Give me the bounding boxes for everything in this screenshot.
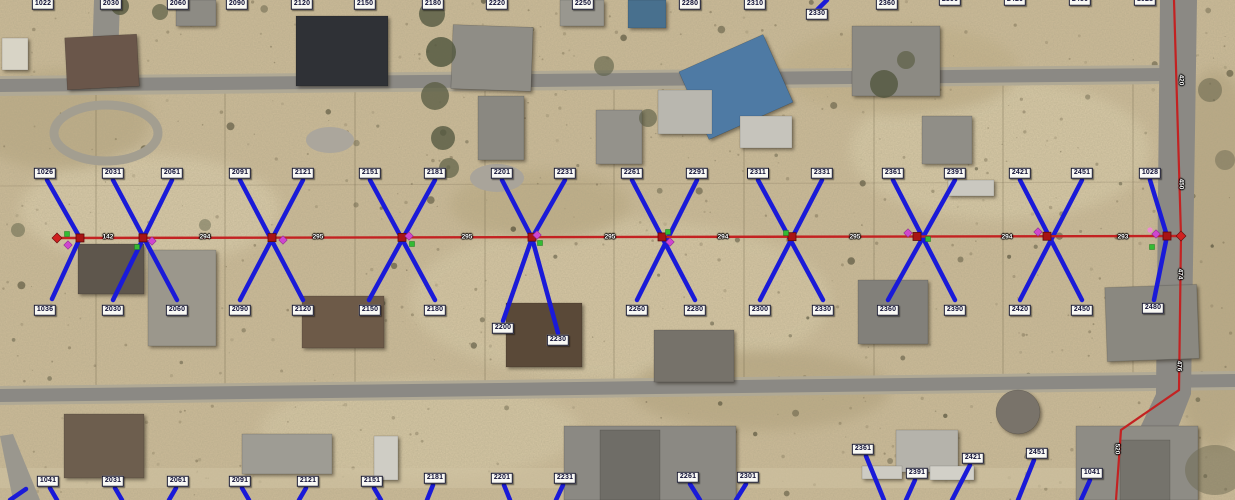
address-label[interactable]: 2061	[167, 476, 189, 487]
address-label[interactable]: 2061	[161, 168, 183, 179]
address-label[interactable]: 1026	[34, 168, 56, 179]
address-label[interactable]: 2280	[679, 0, 701, 9]
address-label[interactable]: 2031	[102, 476, 124, 487]
distance-label: 294	[718, 234, 729, 241]
address-label[interactable]: 2231	[554, 473, 576, 484]
address-label[interactable]: 2361	[852, 444, 874, 455]
address-label[interactable]: 2420	[1009, 305, 1031, 316]
address-label[interactable]: 2181	[424, 168, 446, 179]
address-label[interactable]: 2150	[354, 0, 376, 9]
address-label[interactable]: 2151	[359, 168, 381, 179]
address-label[interactable]: 2330	[806, 9, 828, 20]
address-label[interactable]: 2150	[359, 305, 381, 316]
distance-label: 293	[1118, 234, 1129, 241]
distance-label: 142	[103, 234, 114, 241]
road-distance-label: 520	[1114, 444, 1121, 455]
address-label[interactable]: 2391	[906, 468, 928, 479]
address-label[interactable]: 2181	[424, 473, 446, 484]
address-label[interactable]: 2121	[292, 168, 314, 179]
address-label[interactable]: 2330	[812, 305, 834, 316]
map-viewport: 1022203020602090212021502180222022502280…	[0, 0, 1235, 500]
address-label[interactable]: 2091	[229, 168, 251, 179]
address-label[interactable]: 2361	[882, 168, 904, 179]
address-label[interactable]: 1022	[32, 0, 54, 9]
address-label[interactable]: 2300	[749, 305, 771, 316]
address-label[interactable]: 2120	[291, 0, 313, 9]
address-label[interactable]: 2220	[486, 0, 508, 9]
distance-label: 295	[850, 234, 861, 241]
address-label[interactable]: 2121	[297, 476, 319, 487]
address-label[interactable]: 2291	[686, 168, 708, 179]
address-label[interactable]: 2450	[1071, 305, 1093, 316]
road-distance-label: 420	[1178, 75, 1185, 86]
address-label[interactable]: 2031	[102, 168, 124, 179]
distance-label: 295	[313, 234, 324, 241]
address-label[interactable]: 2060	[167, 0, 189, 9]
address-label[interactable]: 2360	[876, 0, 898, 9]
label-overlay: 1022203020602090212021502180222022502280…	[0, 0, 1235, 500]
address-label[interactable]: 2391	[944, 168, 966, 179]
address-label[interactable]: 2261	[677, 472, 699, 483]
address-label[interactable]: 2120	[292, 305, 314, 316]
address-label[interactable]: 2030	[102, 305, 124, 316]
address-label[interactable]: 2451	[1026, 448, 1048, 459]
address-label[interactable]: 2280	[684, 305, 706, 316]
address-label[interactable]: 2261	[621, 168, 643, 179]
address-label[interactable]: 2060	[166, 305, 188, 316]
address-label[interactable]: 2310	[744, 0, 766, 9]
address-label[interactable]: 2180	[424, 305, 446, 316]
road-distance-label: 474	[1177, 269, 1184, 280]
address-label[interactable]: 2450	[1069, 0, 1091, 5]
address-label[interactable]: 2311	[747, 168, 769, 179]
address-label[interactable]: 2480	[1142, 303, 1164, 314]
address-label[interactable]: 1028	[1134, 0, 1156, 5]
distance-label: 295	[605, 234, 616, 241]
address-label[interactable]: 2091	[229, 476, 251, 487]
address-label[interactable]: 2201	[491, 473, 513, 484]
address-label[interactable]: 2360	[877, 305, 899, 316]
address-label[interactable]: 2420	[1004, 0, 1026, 5]
address-label[interactable]: 1036	[34, 305, 56, 316]
address-label[interactable]: 2390	[939, 0, 961, 5]
address-label[interactable]: 1041	[1081, 468, 1103, 479]
address-label[interactable]: 2230	[547, 335, 569, 346]
address-label[interactable]: 2421	[1009, 168, 1031, 179]
address-label[interactable]: 2301	[737, 472, 759, 483]
address-label[interactable]: 2090	[229, 305, 251, 316]
address-label[interactable]: 2090	[226, 0, 248, 9]
address-label[interactable]: 2250	[572, 0, 594, 9]
distance-label: 295	[462, 234, 473, 241]
address-label[interactable]: 1041	[37, 476, 59, 487]
address-label[interactable]: 2421	[962, 453, 984, 464]
address-label[interactable]: 1028	[1139, 168, 1161, 179]
address-label[interactable]: 2180	[422, 0, 444, 9]
address-label[interactable]: 2200	[492, 323, 514, 334]
road-distance-label: 476	[1176, 361, 1183, 372]
address-label[interactable]: 2451	[1071, 168, 1093, 179]
distance-label: 294	[200, 234, 211, 241]
address-label[interactable]: 2151	[361, 476, 383, 487]
address-label[interactable]: 2030	[100, 0, 122, 9]
road-distance-label: 450	[1178, 179, 1185, 190]
address-label[interactable]: 2331	[811, 168, 833, 179]
address-label[interactable]: 2231	[554, 168, 576, 179]
address-label[interactable]: 2201	[491, 168, 513, 179]
distance-label: 294	[1002, 234, 1013, 241]
address-label[interactable]: 2390	[944, 305, 966, 316]
address-label[interactable]: 2260	[626, 305, 648, 316]
